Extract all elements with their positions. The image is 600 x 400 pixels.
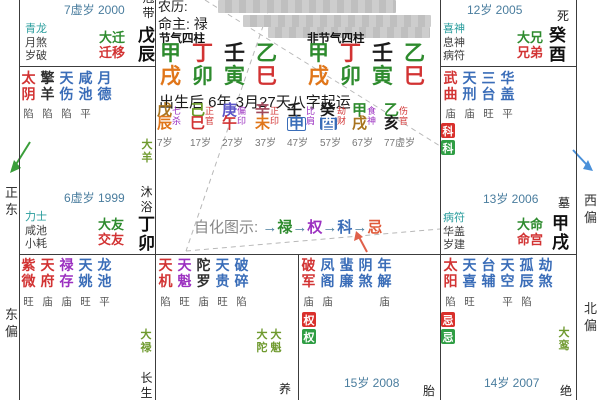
dayun-branch: 亥 bbox=[384, 117, 399, 130]
pillar-branch: 巳 bbox=[256, 66, 277, 88]
star-status: 陷 bbox=[158, 294, 173, 309]
star-status: 旺 bbox=[462, 294, 477, 309]
star-name: 武曲 bbox=[443, 71, 458, 102]
sihua-badge-quan-green: 权 bbox=[302, 329, 316, 344]
star-name: 天姚 bbox=[78, 258, 93, 289]
star-status bbox=[339, 294, 354, 309]
star-name: 天伤 bbox=[59, 71, 74, 102]
star-status: 平 bbox=[97, 294, 112, 309]
star-status: 庙 bbox=[320, 294, 335, 309]
star-name: 年解 bbox=[377, 258, 392, 289]
year-god: 病符 bbox=[443, 212, 465, 226]
star-name: 天机 bbox=[158, 258, 173, 289]
compass-label-north-lean: 北偏 bbox=[583, 300, 598, 334]
pillar-stem: 乙 bbox=[404, 43, 425, 65]
pillar-branch: 卯 bbox=[340, 66, 361, 88]
year-god: 喜神 bbox=[443, 23, 465, 37]
star-status: 庙 bbox=[301, 294, 316, 309]
star-status bbox=[358, 294, 373, 309]
life-stage-label: 沐浴 bbox=[140, 185, 153, 214]
year-god: 岁破 bbox=[25, 50, 47, 64]
dayun-branch: 酉 bbox=[320, 117, 337, 130]
star-status: 旺 bbox=[21, 294, 36, 309]
palace-cell-ming[interactable]: 武曲 天刑 三台 华盖 庙 庙 旺 平 科 科 13岁 2006 墓 病符 华盖… bbox=[440, 66, 576, 254]
year-god: 病符 bbox=[443, 50, 465, 64]
star-row: 紫微 天府 禄存 天姚 龙池 bbox=[21, 258, 112, 289]
arrow-right-icon: → bbox=[352, 219, 367, 236]
dayun-god: 偏印 bbox=[237, 106, 246, 130]
star-name: 天喜 bbox=[462, 258, 477, 289]
dayun-branch: 未 bbox=[255, 117, 270, 130]
dayun-branch: 申 bbox=[287, 117, 306, 131]
non-jieqi-branches-row: 戌 卯 寅 巳 bbox=[308, 66, 425, 88]
grid-line bbox=[576, 0, 577, 400]
palace-cell-xiongdi[interactable]: 12岁 2005 死 喜神 息神 病符 大兄 兄弟 癸酉 bbox=[440, 0, 576, 66]
star-status-row: 旺 庙 庙 旺 平 bbox=[21, 294, 112, 309]
compass-label-east: 正东 bbox=[4, 184, 19, 218]
decade-flow-star: 大魁 bbox=[270, 329, 282, 354]
pillar-stem: 乙 bbox=[256, 43, 277, 65]
dayun-pillar[interactable]: 辛 未 正印 bbox=[255, 104, 279, 130]
year-god: 小耗 bbox=[25, 238, 47, 252]
pillar-branch: 寅 bbox=[372, 66, 393, 88]
star-name: 咸池 bbox=[78, 71, 93, 102]
star-status: 庙 bbox=[196, 294, 211, 309]
year-gods-list: 喜神 息神 病符 bbox=[443, 23, 465, 64]
star-status: 庙 bbox=[443, 106, 458, 121]
dayun-pillar[interactable]: 癸 酉 劫财 bbox=[320, 104, 346, 130]
star-status: 平 bbox=[500, 106, 515, 121]
year-gods-list: 青龙 月煞 岁破 bbox=[25, 23, 47, 64]
decade-palace-label: 大命 bbox=[517, 218, 543, 232]
star-status: 陷 bbox=[21, 106, 36, 121]
dayun-god: 比肩 bbox=[306, 106, 315, 131]
year-god: 息神 bbox=[443, 37, 465, 51]
flow-year-label: 7虚岁 2000 bbox=[64, 1, 125, 18]
year-god: 咸池 bbox=[25, 225, 47, 239]
star-status: 平 bbox=[78, 106, 93, 121]
star-status-row: 庙 庙 庙 bbox=[301, 294, 392, 309]
year-god: 华盖 bbox=[443, 226, 465, 240]
palace-name: 兄弟 bbox=[517, 46, 543, 60]
star-name: 天贵 bbox=[215, 258, 230, 289]
star-row: 破军 凤阁 蜚廉 阴煞 年解 bbox=[301, 258, 392, 289]
star-name: 月德 bbox=[97, 71, 112, 102]
star-name: 紫微 bbox=[21, 258, 36, 289]
star-name: 蜚廉 bbox=[339, 258, 354, 289]
flow-year-label: 14岁 2007 bbox=[484, 374, 539, 391]
life-stage-label: 胎 bbox=[423, 385, 435, 398]
star-status: 庙 bbox=[462, 106, 477, 121]
star-name: 三台 bbox=[481, 71, 496, 102]
star-status-row: 陷 陷 陷 平 bbox=[21, 106, 112, 121]
decade-flow-star: 大陀 bbox=[256, 329, 268, 354]
dayun-age: 7岁 bbox=[157, 134, 173, 149]
pillar-stem: 壬 bbox=[372, 43, 393, 65]
year-god: 青龙 bbox=[25, 23, 47, 37]
dayun-pillar[interactable]: 己 巳 正官 bbox=[190, 104, 214, 130]
non-jieqi-stems-row: 甲 丁 壬 乙 bbox=[308, 43, 425, 65]
zihua-ke: 科 bbox=[337, 219, 352, 236]
zihua-legend: 自化图示: →禄→权→科→忌 bbox=[194, 216, 382, 237]
star-status-row: 陷 旺 庙 旺 陷 bbox=[158, 294, 249, 309]
dayun-god: 伤官 bbox=[399, 106, 408, 130]
star-name: 华盖 bbox=[500, 71, 515, 102]
pillar-stem: 甲 bbox=[160, 43, 181, 65]
pillar-stem: 丁 bbox=[340, 43, 361, 65]
decade-flow-star: 大鸾 bbox=[558, 327, 570, 352]
jieqi-stems-row: 甲 丁 壬 乙 bbox=[160, 43, 277, 65]
star-name: 禄存 bbox=[59, 258, 74, 289]
jieqi-branches-row: 戌 卯 寅 巳 bbox=[160, 66, 277, 88]
sihua-badge-ji-green: 忌 bbox=[441, 329, 455, 344]
decade-flow-star: 大羊 bbox=[141, 139, 153, 164]
star-status: 旺 bbox=[481, 106, 496, 121]
pillar-branch: 戌 bbox=[308, 66, 329, 88]
sihua-badge-ke-green: 科 bbox=[441, 140, 455, 155]
decade-palace-label: 大迁 bbox=[99, 31, 125, 45]
dayun-age: 17岁 bbox=[190, 134, 211, 149]
star-name: 破军 bbox=[301, 258, 316, 289]
palace-cell-pojun[interactable]: 破军 凤阁 蜚廉 阴煞 年解 庙 庙 庙 权 权 15岁 2008 胎 bbox=[298, 254, 440, 400]
pillar-stem: 甲 bbox=[308, 43, 329, 65]
star-status: 陷 bbox=[519, 294, 534, 309]
dayun-age: 77虚岁 bbox=[384, 134, 415, 149]
palace-cell-taiyang[interactable]: 太阳 天喜 台辅 天空 孤辰 劫煞 陷 旺 平 陷 忌 忌 大鸾 14岁 200… bbox=[440, 254, 576, 400]
ganzhi-label: 癸酉 bbox=[548, 26, 567, 64]
year-gods-list: 力士 咸池 小耗 bbox=[25, 211, 47, 252]
dayun-god: 正印 bbox=[270, 106, 279, 130]
star-name: 天刑 bbox=[462, 71, 477, 102]
pillar-stem: 壬 bbox=[224, 43, 245, 65]
star-name: 天空 bbox=[500, 258, 515, 289]
star-status: 陷 bbox=[443, 294, 458, 309]
flow-year-label: 6虚岁 1999 bbox=[64, 189, 125, 206]
star-name: 阴煞 bbox=[358, 258, 373, 289]
star-row: 武曲 天刑 三台 华盖 bbox=[443, 71, 515, 102]
ziwei-chart-app: 正东 东偏 西偏 北偏 7虚岁 2000 冠带 青龙 月煞 岁破 大迁 迁移 戊… bbox=[0, 0, 600, 400]
year-god: 力士 bbox=[25, 211, 47, 225]
dayun-age: 67岁 bbox=[352, 134, 373, 149]
dayun-branch: 午 bbox=[222, 117, 237, 130]
palace-name: 交友 bbox=[98, 233, 124, 247]
star-status: 旺 bbox=[215, 294, 230, 309]
star-status bbox=[97, 106, 112, 121]
flow-year-label: 12岁 2005 bbox=[467, 1, 522, 18]
star-status: 旺 bbox=[177, 294, 192, 309]
zihua-quan: 权 bbox=[307, 219, 322, 236]
life-stage-label: 冠带 bbox=[142, 0, 155, 20]
palace-cell-jiaoyou[interactable]: 太阴 擎羊 天伤 咸池 月德 陷 陷 陷 平 大羊 6虚岁 1999 沐浴 力士… bbox=[19, 66, 155, 254]
star-status: 陷 bbox=[59, 106, 74, 121]
decade-palace-label: 大兄 bbox=[517, 31, 543, 45]
dayun-branch: 戌 bbox=[352, 117, 367, 130]
life-stage-label: 长生 bbox=[140, 371, 153, 400]
life-stage-label: 绝 bbox=[560, 385, 572, 398]
star-name: 天魁 bbox=[177, 258, 192, 289]
star-name: 破碎 bbox=[234, 258, 249, 289]
zihua-ji: 忌 bbox=[367, 219, 382, 236]
star-status bbox=[538, 294, 553, 309]
star-row: 天机 天魁 陀罗 天贵 破碎 bbox=[158, 258, 249, 289]
star-name: 龙池 bbox=[97, 258, 112, 289]
pillar-branch: 巳 bbox=[404, 66, 425, 88]
year-god: 岁建 bbox=[443, 239, 465, 253]
pillar-branch: 寅 bbox=[224, 66, 245, 88]
arrow-right-icon: → bbox=[292, 219, 307, 236]
palace-cell-qianyi[interactable]: 7虚岁 2000 冠带 青龙 月煞 岁破 大迁 迁移 戊辰 bbox=[19, 0, 155, 66]
star-status: 庙 bbox=[377, 294, 392, 309]
sihua-badge-quan-red: 权 bbox=[302, 312, 316, 327]
star-name: 孤辰 bbox=[519, 258, 534, 289]
life-stage-label: 死 bbox=[557, 10, 569, 23]
star-status-row: 陷 旺 平 陷 bbox=[443, 294, 553, 309]
star-name: 天府 bbox=[40, 258, 55, 289]
star-status: 平 bbox=[500, 294, 515, 309]
star-status-row: 庙 庙 旺 平 bbox=[443, 106, 515, 121]
star-status: 陷 bbox=[40, 106, 55, 121]
dayun-age: 57岁 bbox=[320, 134, 341, 149]
arrow-right-icon: → bbox=[262, 219, 277, 236]
star-status: 庙 bbox=[40, 294, 55, 309]
dayun-branch: 巳 bbox=[190, 117, 205, 130]
star-status: 庙 bbox=[59, 294, 74, 309]
star-row: 太阳 天喜 台辅 天空 孤辰 劫煞 bbox=[443, 258, 553, 289]
dayun-pillar[interactable]: 乙 亥 伤官 bbox=[384, 104, 408, 130]
palace-name: 迁移 bbox=[99, 46, 125, 60]
life-stage-label: 养 bbox=[279, 383, 291, 396]
palace-name: 命宫 bbox=[517, 233, 543, 247]
dayun-age: 47岁 bbox=[287, 134, 308, 149]
star-status: 旺 bbox=[78, 294, 93, 309]
star-name: 劫煞 bbox=[538, 258, 553, 289]
sihua-badge-ke-red: 科 bbox=[441, 123, 455, 138]
compass-label-east-lean: 东偏 bbox=[4, 306, 19, 340]
flow-year-label: 15岁 2008 bbox=[344, 374, 399, 391]
flow-year-label: 13岁 2006 bbox=[483, 190, 538, 207]
decade-flow-star: 大禄 bbox=[140, 329, 152, 354]
zihua-label: 自化图示: bbox=[194, 219, 258, 236]
redacted-name-block bbox=[218, 0, 396, 13]
star-name: 太阴 bbox=[21, 71, 36, 102]
palace-cell-tianji[interactable]: 天机 天魁 陀罗 天贵 破碎 陷 旺 庙 旺 陷 大陀 大魁 养 bbox=[155, 254, 298, 400]
star-name: 太阳 bbox=[443, 258, 458, 289]
dayun-god: 食神 bbox=[367, 106, 376, 130]
decade-palace-label: 大友 bbox=[98, 218, 124, 232]
dayun-age: 37岁 bbox=[255, 134, 276, 149]
star-status: 陷 bbox=[234, 294, 249, 309]
dayun-pillar[interactable]: 壬 申 比肩 bbox=[287, 104, 315, 131]
arrow-right-icon: → bbox=[322, 219, 337, 236]
ganzhi-label: 甲戌 bbox=[551, 214, 570, 252]
star-status bbox=[481, 294, 496, 309]
dayun-pillar[interactable]: 甲 戌 食神 bbox=[352, 104, 376, 130]
compass-label-west-lean: 西偏 bbox=[583, 192, 598, 226]
year-gods-list: 病符 华盖 岁建 bbox=[443, 212, 465, 253]
life-stage-label: 墓 bbox=[558, 197, 570, 210]
dayun-branch: 辰 bbox=[157, 117, 172, 130]
dayun-god: 七杀 bbox=[172, 106, 181, 130]
star-row: 太阴 擎羊 天伤 咸池 月德 bbox=[21, 71, 112, 102]
ganzhi-label: 丁卯 bbox=[137, 215, 156, 253]
ganzhi-label: 戊辰 bbox=[137, 26, 156, 64]
dayun-god: 劫财 bbox=[337, 106, 346, 130]
star-name: 擎羊 bbox=[40, 71, 55, 102]
year-god: 月煞 bbox=[25, 37, 47, 51]
star-name: 陀罗 bbox=[196, 258, 211, 289]
palace-cell-ziwei[interactable]: 紫微 天府 禄存 天姚 龙池 旺 庙 庙 旺 平 大禄 长生 bbox=[19, 254, 155, 400]
pillar-branch: 戌 bbox=[160, 66, 181, 88]
dayun-pillar[interactable]: 庚 午 偏印 bbox=[222, 104, 246, 130]
dayun-god: 正官 bbox=[205, 106, 214, 130]
dayun-pillar[interactable]: 戊 辰 七杀 bbox=[157, 104, 181, 130]
star-name: 台辅 bbox=[481, 258, 496, 289]
star-name: 凤阁 bbox=[320, 258, 335, 289]
dayun-age: 27岁 bbox=[222, 134, 243, 149]
zihua-lu: 禄 bbox=[277, 219, 292, 236]
pillar-stem: 丁 bbox=[192, 43, 213, 65]
lunar-date-label: 农历: bbox=[158, 0, 188, 15]
pillar-branch: 卯 bbox=[192, 66, 213, 88]
center-info-panel: 农历: 命主: 禄 节气四柱 非节气四柱 甲 丁 壬 乙 戌 卯 寅 巳 甲 丁… bbox=[155, 0, 440, 254]
sihua-badge-ji-red: 忌 bbox=[441, 312, 455, 327]
redacted-block bbox=[243, 15, 431, 27]
